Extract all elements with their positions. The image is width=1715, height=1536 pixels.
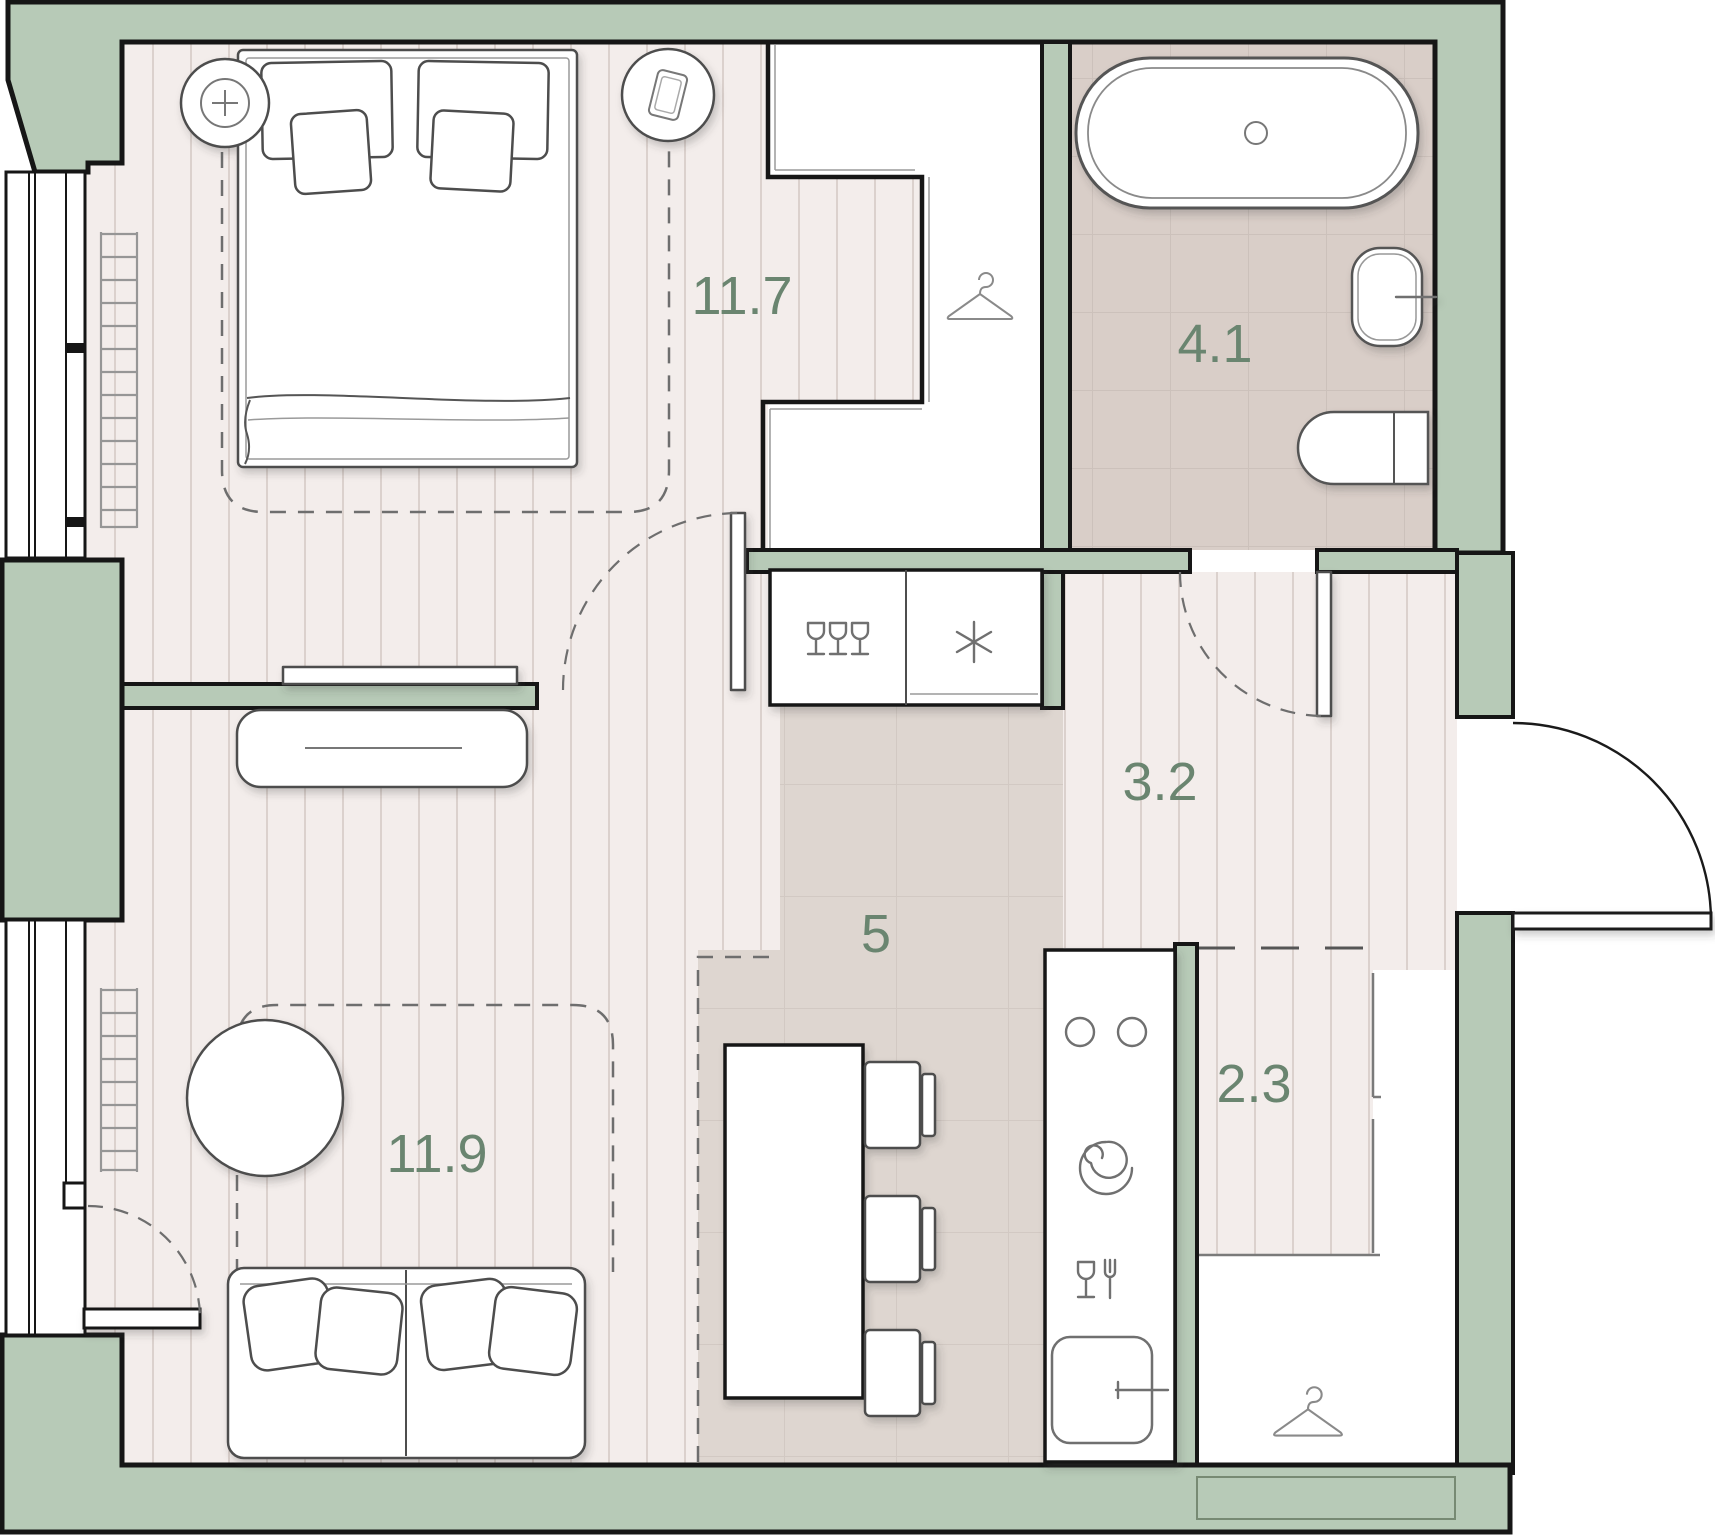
bedroom-door-leaf (731, 513, 745, 690)
wall-entry-top (1457, 553, 1513, 717)
room-label-kitchen: 5 (861, 904, 891, 964)
wall-bedroom-living (118, 684, 537, 708)
entry-door-arc (1513, 723, 1711, 921)
pillow (314, 1286, 404, 1376)
kitchen-island (725, 1045, 863, 1398)
round-table (187, 1020, 343, 1176)
wall-kitchen-stub (1042, 572, 1063, 708)
sofa (228, 1268, 585, 1458)
toilet (1298, 412, 1428, 484)
kitchen-cabinet (770, 570, 1042, 705)
hallway-floor-sliver (1373, 948, 1457, 972)
nightstand-right (622, 49, 714, 141)
room-label-hallway: 3.2 (1122, 752, 1197, 812)
bathtub (1076, 58, 1418, 208)
pillow (487, 1285, 578, 1376)
room-label-bathroom: 4.1 (1177, 314, 1252, 374)
wall-left-pier (2, 560, 122, 920)
bed (238, 50, 577, 467)
nightstand-left (181, 59, 269, 147)
entry-door-leaf (1513, 913, 1711, 929)
door-jamb (64, 1183, 85, 1208)
wall-bath-bottom-right (1317, 550, 1457, 572)
room-label-bedroom: 11.7 (691, 266, 792, 326)
counter-sink (1052, 1337, 1168, 1443)
pillow (430, 110, 514, 192)
mullion-tick (66, 343, 85, 353)
living-kitchen-floor-strip (698, 684, 780, 950)
wall-closet-bathroom (1042, 42, 1070, 550)
room-label-wardrobe: 2.3 (1216, 1054, 1291, 1114)
wall-counter-wardrobe (1175, 944, 1197, 1465)
bathroom-door-leaf (1317, 572, 1331, 716)
wall-entry-bottom (1457, 913, 1513, 1473)
kitchen-counter (1045, 950, 1175, 1462)
room-label-living-room: 11.9 (386, 1124, 487, 1184)
floor-plan: 11.7 4.1 3.2 5 2.3 11.9 (0, 0, 1715, 1536)
bar-stools (865, 1062, 935, 1416)
floor-plan-svg: 11.7 4.1 3.2 5 2.3 11.9 (0, 0, 1715, 1536)
mullion-tick (66, 517, 85, 527)
window-bay-top (6, 172, 85, 558)
balcony-door-leaf (84, 1309, 200, 1328)
pillow (290, 109, 371, 194)
dresser (237, 710, 527, 787)
wall-shelf (283, 667, 517, 684)
window-bay-bottom (6, 920, 85, 1335)
